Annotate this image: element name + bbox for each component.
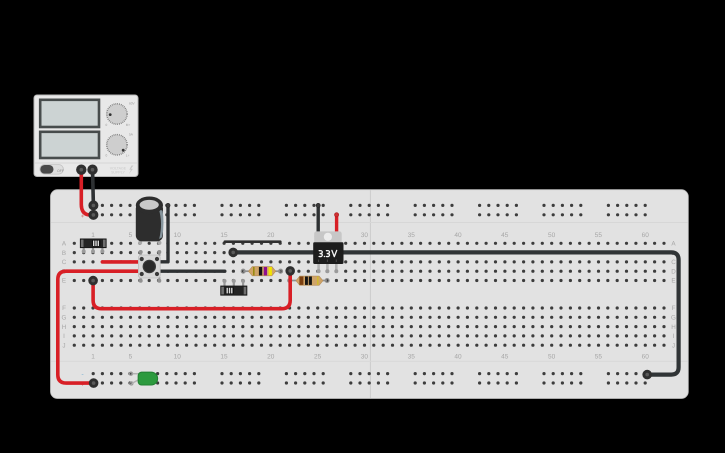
svg-text:H: H <box>671 324 676 331</box>
svg-text:50: 50 <box>548 353 556 360</box>
svg-text:60: 60 <box>642 232 650 239</box>
svg-text:E: E <box>671 278 675 285</box>
svg-text:M+: M+ <box>126 123 131 127</box>
svg-text:0: 0 <box>106 123 108 127</box>
svg-text:0: 0 <box>106 154 108 158</box>
svg-text:I: I <box>63 333 65 340</box>
svg-text:D: D <box>671 268 676 275</box>
svg-text:45: 45 <box>501 353 509 360</box>
svg-text:10: 10 <box>174 353 182 360</box>
svg-text:35: 35 <box>408 232 416 239</box>
svg-text:45: 45 <box>501 232 509 239</box>
svg-text:F: F <box>672 305 676 312</box>
svg-text:E: E <box>62 278 66 285</box>
svg-text:1: 1 <box>91 353 95 360</box>
svg-text:B: B <box>62 250 66 257</box>
svg-text:40: 40 <box>454 353 462 360</box>
svg-text:SUPPLY: SUPPLY <box>111 171 126 175</box>
svg-text:60V: 60V <box>129 102 136 106</box>
svg-text:5: 5 <box>129 353 133 360</box>
svg-text:5: 5 <box>129 232 133 239</box>
svg-text:F: F <box>62 305 66 312</box>
svg-text:50: 50 <box>548 232 556 239</box>
svg-text:40: 40 <box>454 232 462 239</box>
svg-text:C: C <box>62 259 67 266</box>
svg-text:OFF: OFF <box>57 169 64 173</box>
svg-text:55: 55 <box>595 353 603 360</box>
svg-text:J: J <box>672 342 675 349</box>
svg-text:25: 25 <box>314 353 322 360</box>
svg-text:10: 10 <box>174 232 182 239</box>
svg-text:20: 20 <box>267 353 275 360</box>
svg-text:30: 30 <box>361 232 369 239</box>
svg-text:60: 60 <box>642 353 650 360</box>
svg-text:L+: L+ <box>126 154 130 158</box>
svg-text:55: 55 <box>595 232 603 239</box>
svg-text:H: H <box>62 324 67 331</box>
svg-text:I: I <box>673 333 675 340</box>
svg-text:35: 35 <box>408 353 416 360</box>
svg-text:G: G <box>671 315 676 322</box>
svg-text:C: C <box>671 259 676 266</box>
svg-text:30: 30 <box>361 353 369 360</box>
svg-text:15: 15 <box>220 232 228 239</box>
svg-text:15: 15 <box>220 353 228 360</box>
svg-text:1: 1 <box>91 232 95 239</box>
svg-text:20: 20 <box>267 232 275 239</box>
svg-text:J: J <box>62 342 65 349</box>
svg-text:G: G <box>62 315 67 322</box>
